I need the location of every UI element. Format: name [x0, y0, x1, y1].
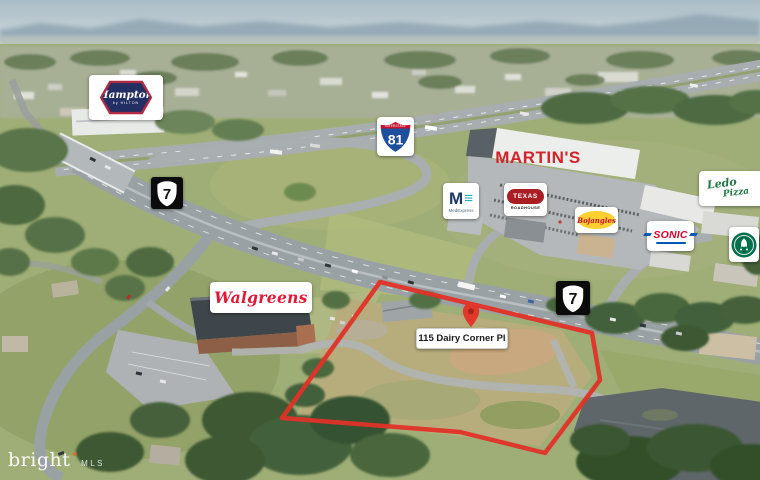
location-pin-icon — [462, 302, 480, 328]
bojangles-badge: Bojangles — [575, 207, 618, 233]
hampton-hex: Hampton by HILTON — [97, 83, 155, 113]
aerial-listing-photo: Hampton by HILTON INTERSTATE 81 7 7 MAR — [0, 0, 760, 480]
hampton-wordmark: Hampton — [99, 90, 154, 100]
brightmls-star-icon: ✦ — [71, 450, 78, 459]
sonic-badge: SONIC — [647, 221, 694, 251]
bojangles-oval: Bojangles — [578, 211, 615, 229]
route-7-number-west: 7 — [163, 186, 171, 203]
brightmls-watermark: bright ✦ MLS — [8, 449, 105, 471]
medexpress-e-bars: ≡ — [464, 191, 473, 207]
ledo-pizza-badge: Ledo Pizza — [699, 171, 760, 206]
ledo-pizza-word: Pizza — [723, 187, 750, 199]
texas-roadhouse-oval: TEXAS — [507, 189, 544, 204]
address-label: 115 Dairy Corner Pl — [416, 328, 508, 349]
hampton-inn-badge: Hampton by HILTON — [89, 75, 163, 120]
texas-roadhouse-sub: ROADHOUSE — [511, 205, 541, 210]
martins-sign: MARTIN'S — [492, 148, 584, 168]
texas-roadhouse-badge: TEXAS ROADHOUSE — [504, 183, 547, 216]
hampton-tagline: by HILTON — [113, 101, 139, 105]
medexpress-badge: M ≡ MedExpress — [443, 183, 479, 219]
sonic-right-wing-icon — [689, 233, 698, 236]
interstate-81-shield: INTERSTATE 81 — [377, 117, 414, 156]
walgreens-wordmark: Walgreens — [214, 288, 307, 307]
starbucks-siren-icon — [731, 232, 757, 258]
interstate-caption: INTERSTATE — [385, 124, 406, 128]
walgreens-badge: Walgreens — [210, 282, 312, 313]
route-7-number-east: 7 — [569, 291, 578, 308]
bojangles-wordmark: Bojangles — [577, 216, 616, 225]
brightmls-mls: MLS — [81, 459, 105, 468]
route-7-shield-west: 7 — [151, 177, 183, 209]
brightmls-brand: bright — [8, 449, 70, 471]
sonic-wordmark: SONIC — [653, 229, 687, 241]
interstate-number: 81 — [388, 132, 404, 148]
medexpress-m-mark: M — [449, 191, 463, 207]
medexpress-name: MedExpress — [448, 208, 473, 213]
sonic-left-wing-icon — [644, 233, 653, 236]
sonic-underline — [656, 242, 686, 244]
hampton-hex-border: Hampton by HILTON — [94, 80, 158, 115]
starbucks-badge — [729, 227, 759, 262]
route-7-shield-east: 7 — [556, 281, 590, 315]
